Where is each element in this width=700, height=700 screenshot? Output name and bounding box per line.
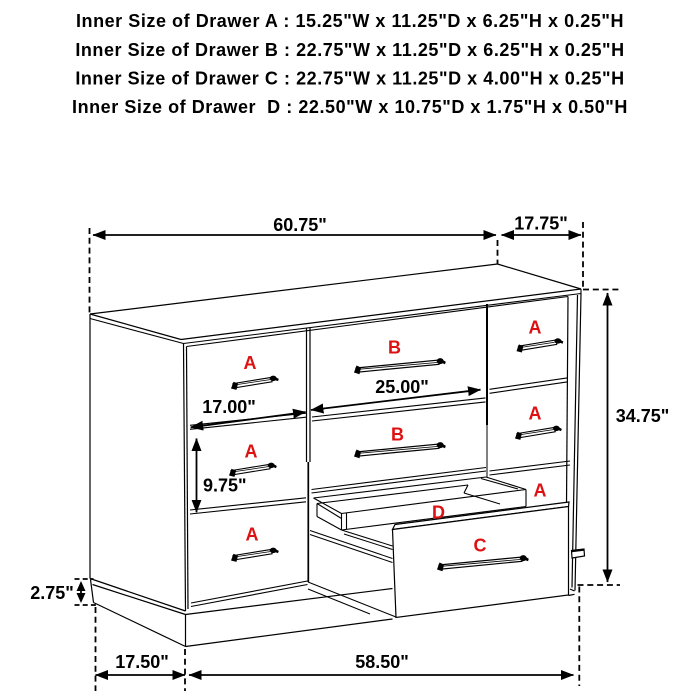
svg-text:Inner Size of Drawer B : 22.75: Inner Size of Drawer B : 22.75"W x 11.25… xyxy=(75,40,624,60)
svg-text:A: A xyxy=(246,525,259,545)
svg-text:A: A xyxy=(245,442,258,462)
svg-text:2.75": 2.75" xyxy=(30,583,74,603)
svg-text:B: B xyxy=(388,338,401,358)
svg-text:C: C xyxy=(474,536,487,556)
svg-text:9.75": 9.75" xyxy=(203,476,247,496)
svg-text:25.00": 25.00" xyxy=(375,377,429,397)
svg-text:B: B xyxy=(391,425,404,445)
svg-text:A: A xyxy=(529,318,542,338)
svg-text:34.75": 34.75" xyxy=(616,406,670,426)
svg-text:A: A xyxy=(534,481,547,501)
svg-text:A: A xyxy=(529,404,542,424)
svg-text:A: A xyxy=(244,353,257,373)
svg-text:17.50": 17.50" xyxy=(115,652,169,672)
svg-text:17.75": 17.75" xyxy=(514,214,568,234)
svg-text:17.00": 17.00" xyxy=(202,397,256,417)
svg-text:60.75": 60.75" xyxy=(273,215,327,235)
svg-text:Inner Size of Drawer C : 22.75: Inner Size of Drawer C : 22.75"W x 11.25… xyxy=(75,69,624,89)
svg-text:Inner Size of Drawer A : 15.25: Inner Size of Drawer A : 15.25"W x 11.25… xyxy=(76,11,624,31)
svg-text:D: D xyxy=(432,503,445,523)
svg-text:Inner Size of Drawer D : 22.5: Inner Size of Drawer D : 22.50"W x 10.75… xyxy=(72,97,628,117)
svg-text:58.50": 58.50" xyxy=(355,652,409,672)
